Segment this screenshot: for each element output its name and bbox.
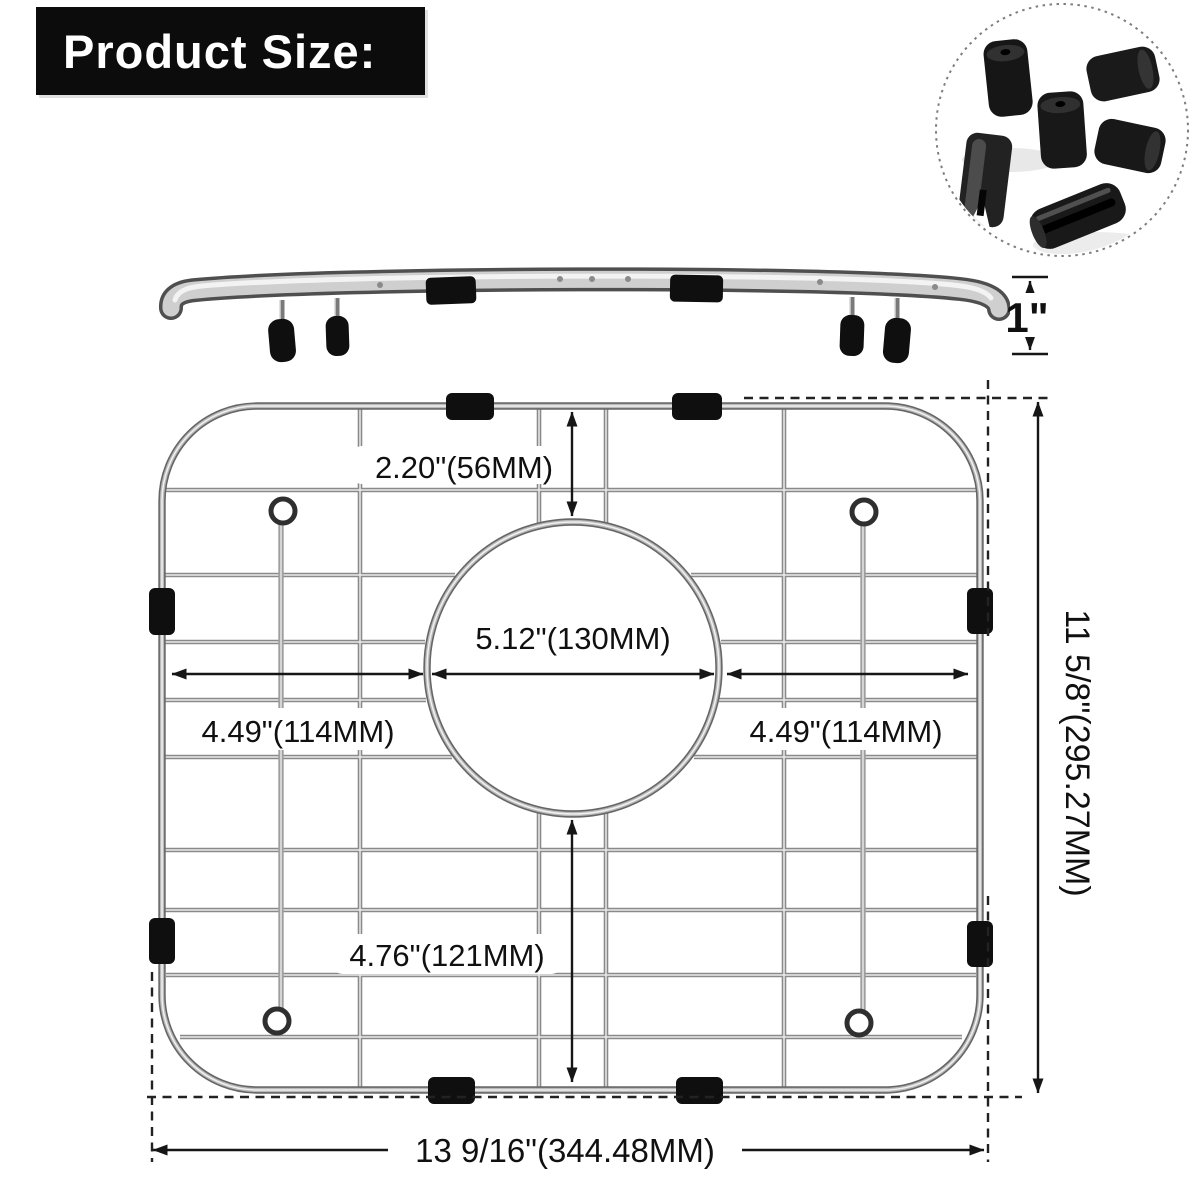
size-diagram-canvas: 1" (0, 0, 1200, 1200)
side-height-label: 1" (1005, 294, 1048, 341)
dimension-label-left-gap: 4.49"(114MM) (201, 714, 394, 749)
dimension-label-overall-height: 11 5/8"(295.27MM) (1058, 609, 1096, 896)
side-height-dimension: 1" (1005, 277, 1060, 354)
side-view-rubber-feet (267, 315, 912, 364)
dimension-label-top-gap: 2.20"(56MM) (375, 450, 553, 485)
feet-photo-circle (936, 4, 1188, 258)
dimension-label-right-gap: 4.49"(114MM) (749, 714, 942, 749)
dimension-label-overall-width: 13 9/16"(344.48MM) (415, 1132, 715, 1169)
dimension-label-bottom-gap: 4.76"(121MM) (349, 938, 544, 973)
side-view-drawing: 1" (171, 275, 1060, 364)
foot-stem-highlights (280, 297, 895, 324)
dimension-label-hole-diameter: 5.12"(130MM) (475, 621, 670, 656)
foot-stems (282, 297, 897, 324)
product-size-diagram-page: Product Size: (0, 0, 1200, 1200)
